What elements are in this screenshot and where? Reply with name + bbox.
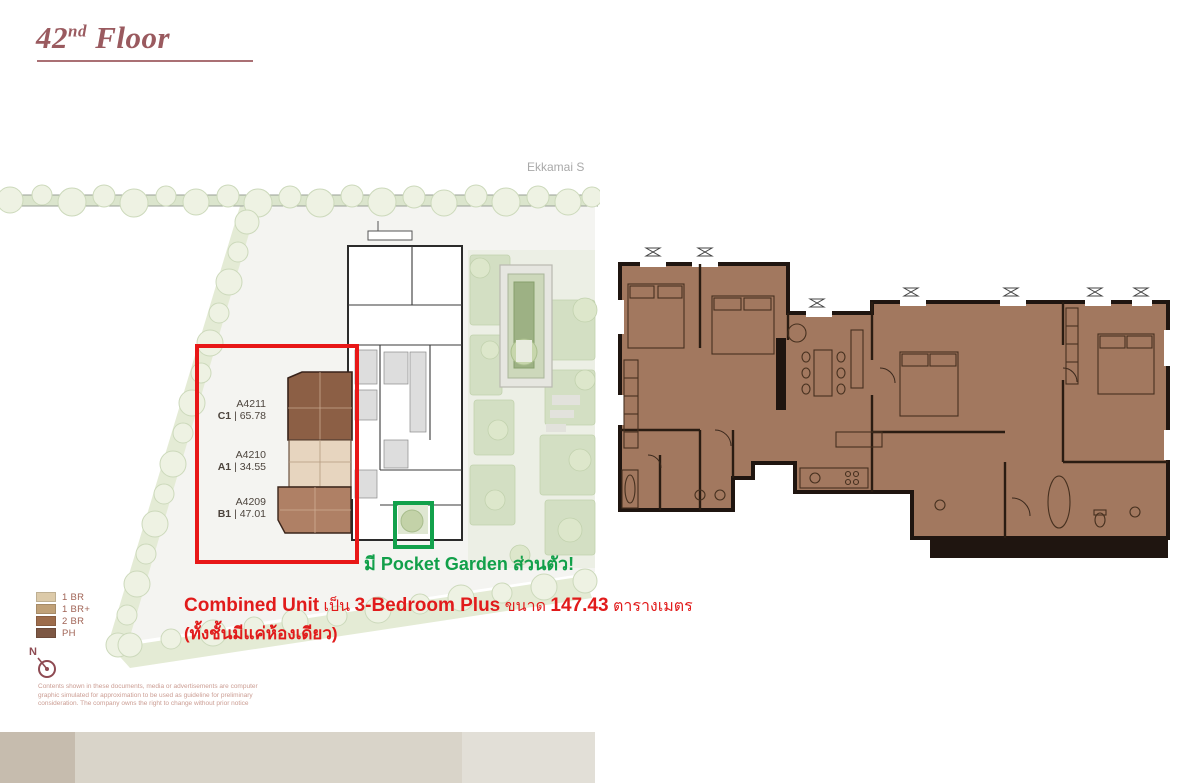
legend-swatch-2br <box>36 616 56 626</box>
page: 42nd Floor <box>0 0 1200 783</box>
compass-icon <box>33 654 61 682</box>
floorplan-footprint <box>620 264 1168 558</box>
disclaimer: Contents shown in these documents, media… <box>38 683 258 709</box>
title-word: Floor <box>87 20 170 55</box>
floorplan-terrace-bar <box>930 538 1168 558</box>
legend-item-ph: PH <box>36 627 90 639</box>
combined-units-highlight-box <box>195 344 359 564</box>
footer-strip-segment-2 <box>75 732 462 783</box>
legend-item-1br: 1 BR <box>36 591 90 603</box>
unit-floor-plan-figure <box>600 240 1180 580</box>
disclaimer-line: consideration. The company owns the righ… <box>38 700 258 709</box>
title-number: 42 <box>36 20 68 55</box>
legend-item-2br: 2 BR <box>36 615 90 627</box>
legend-swatch-1br <box>36 592 56 602</box>
legend: 1 BR 1 BR+ 2 BR PH <box>36 591 90 639</box>
disclaimer-line: Contents shown in these documents, media… <box>38 683 258 692</box>
title-underline <box>37 60 253 62</box>
disclaimer-line: graphic simulated for approximation to b… <box>38 692 258 701</box>
combined-unit-note-line2: (ทั้งชั้นมีแค่ห้องเดียว) <box>184 620 338 647</box>
pocket-garden-highlight-box <box>393 501 434 549</box>
footer-strip-segment-3 <box>462 732 595 783</box>
combined-unit-note: Combined Unit เป็น 3-Bedroom Plus ขนาด 1… <box>184 594 693 619</box>
legend-item-1br-plus: 1 BR+ <box>36 603 90 615</box>
footer-strip-segment-1 <box>0 732 75 783</box>
legend-swatch-1br-plus <box>36 604 56 614</box>
page-title: 42nd Floor <box>36 20 170 56</box>
wall-chunk <box>776 338 786 410</box>
pocket-garden-note: มี Pocket Garden ส่วนตัว! <box>364 549 574 578</box>
garden-area <box>468 250 597 568</box>
street-label: Ekkamai S <box>527 160 584 174</box>
pool <box>500 265 552 387</box>
legend-swatch-ph <box>36 628 56 638</box>
title-ordinal: nd <box>68 22 87 41</box>
